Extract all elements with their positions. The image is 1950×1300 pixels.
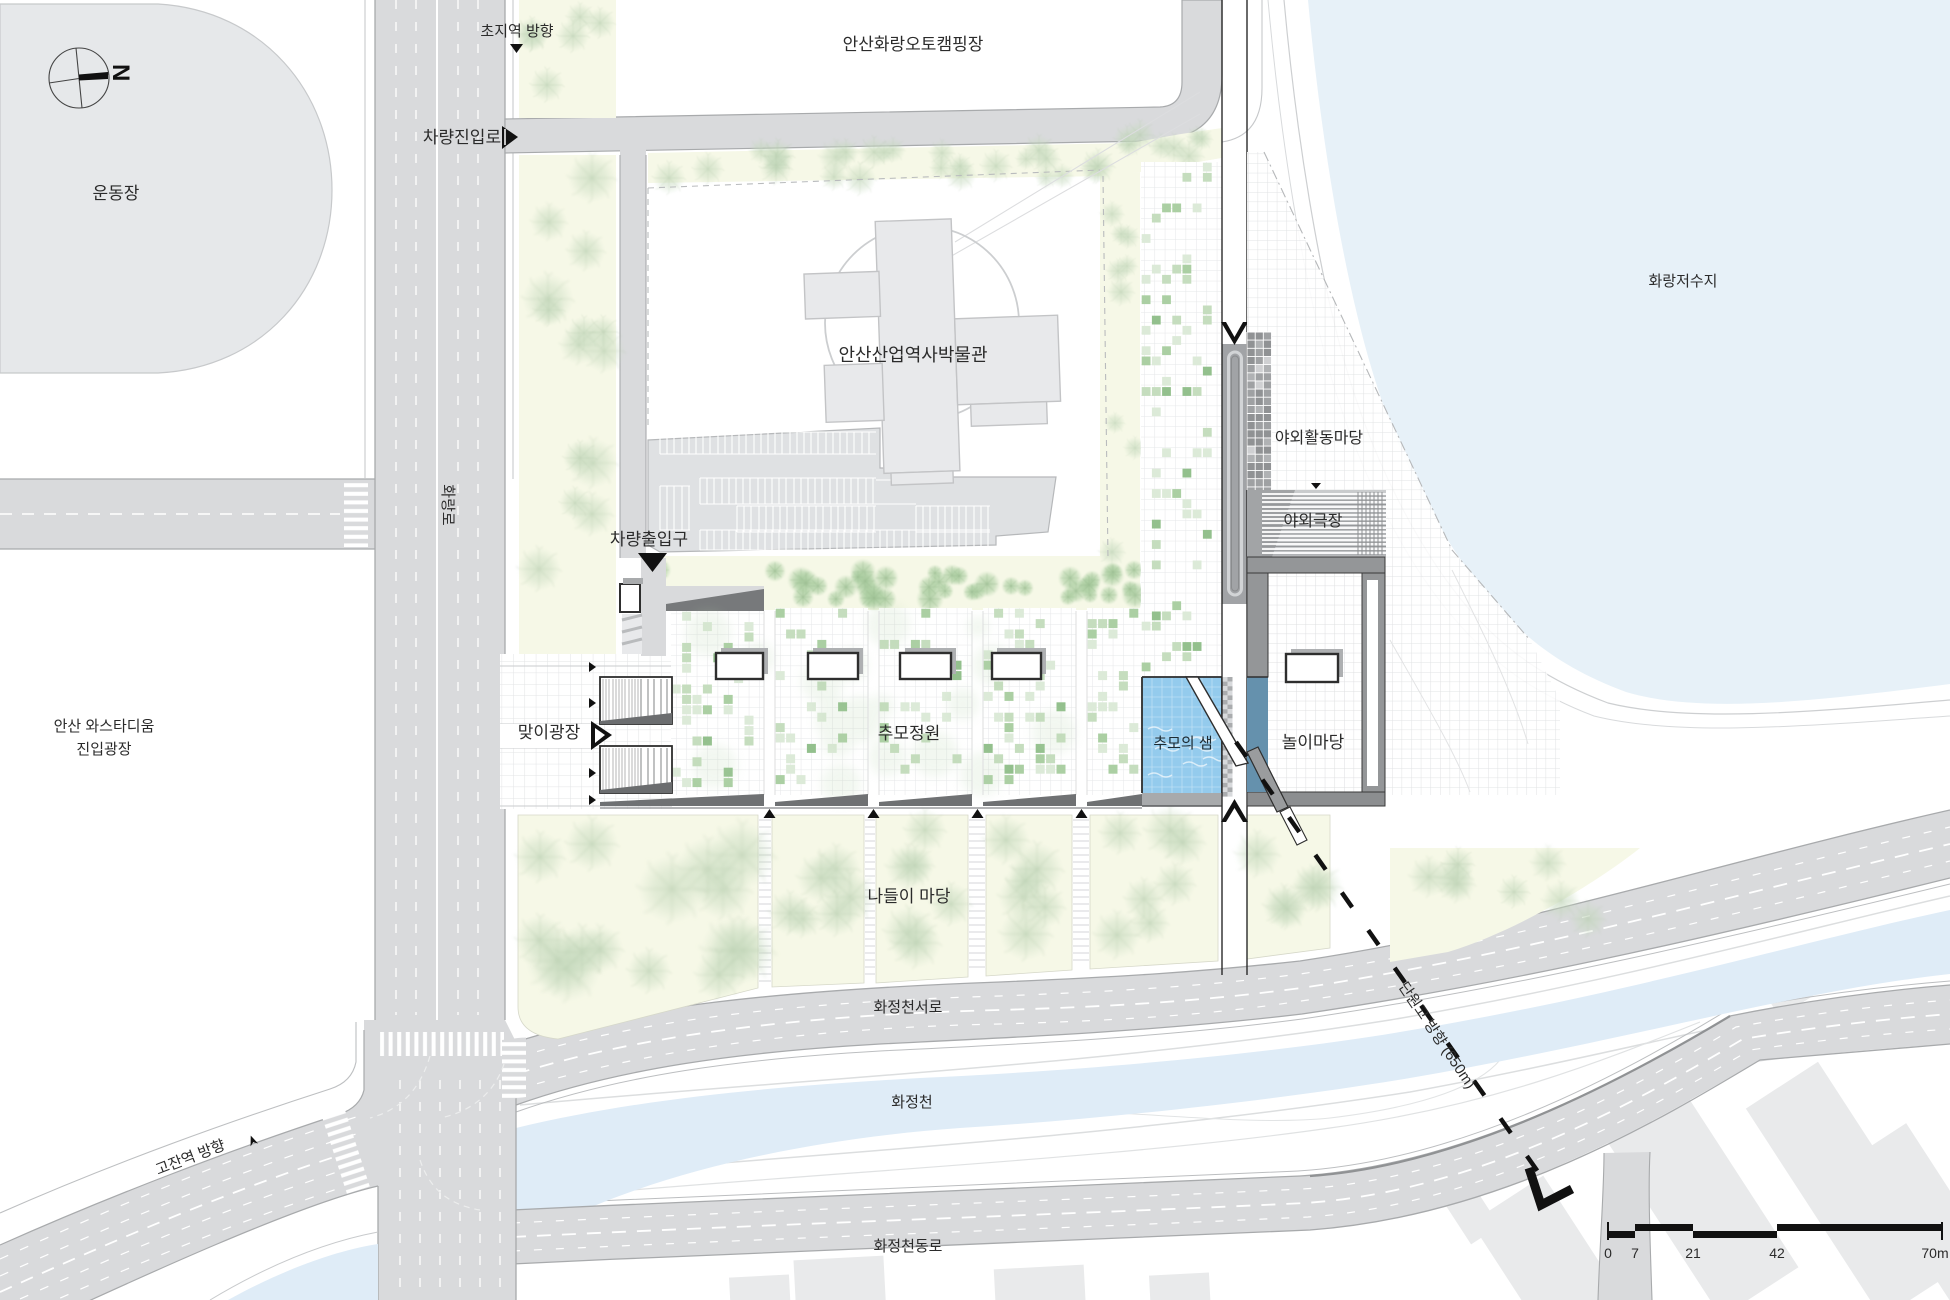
svg-text:추모의 샘: 추모의 샘 [1153,735,1212,752]
svg-text:42: 42 [1769,1245,1785,1261]
svg-text:안산산업역사박물관: 안산산업역사박물관 [838,345,987,365]
svg-text:7: 7 [1631,1245,1639,1261]
svg-text:진입광장: 진입광장 [76,741,131,758]
svg-text:야외활동마당: 야외활동마당 [1275,429,1364,447]
svg-text:화정천동로: 화정천동로 [873,1238,942,1255]
svg-text:놀이마당: 놀이마당 [1282,733,1345,752]
svg-text:화랑저수지: 화랑저수지 [1648,273,1717,290]
svg-text:N: N [107,64,134,81]
svg-text:차량출입구: 차량출입구 [610,530,688,549]
svg-text:화정천서로: 화정천서로 [873,999,942,1016]
svg-text:0: 0 [1604,1245,1612,1261]
svg-text:초지역 방향: 초지역 방향 [480,23,553,40]
svg-text:맞이광장: 맞이광장 [518,723,581,742]
svg-text:야외극장: 야외극장 [1284,512,1343,530]
svg-text:차량진입로: 차량진입로 [423,128,501,147]
svg-text:화정천: 화정천 [891,1094,932,1111]
svg-text:나들이 마당: 나들이 마당 [868,887,951,906]
svg-text:추모정원: 추모정원 [878,724,941,743]
svg-text:안산 와스타디움: 안산 와스타디움 [54,718,155,735]
svg-text:화랑로: 화랑로 [439,484,456,526]
svg-text:21: 21 [1685,1245,1701,1261]
svg-text:운동장: 운동장 [93,184,140,203]
svg-text:안산화랑오토캠핑장: 안산화랑오토캠핑장 [843,35,984,54]
svg-text:70m: 70m [1921,1245,1948,1261]
